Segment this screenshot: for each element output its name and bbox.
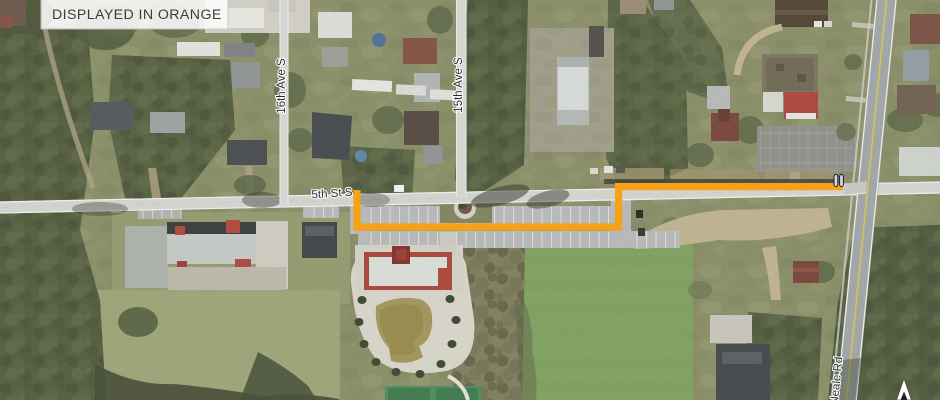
svg-text:DISPLAYED IN ORANGE: DISPLAYED IN ORANGE [52,7,222,23]
